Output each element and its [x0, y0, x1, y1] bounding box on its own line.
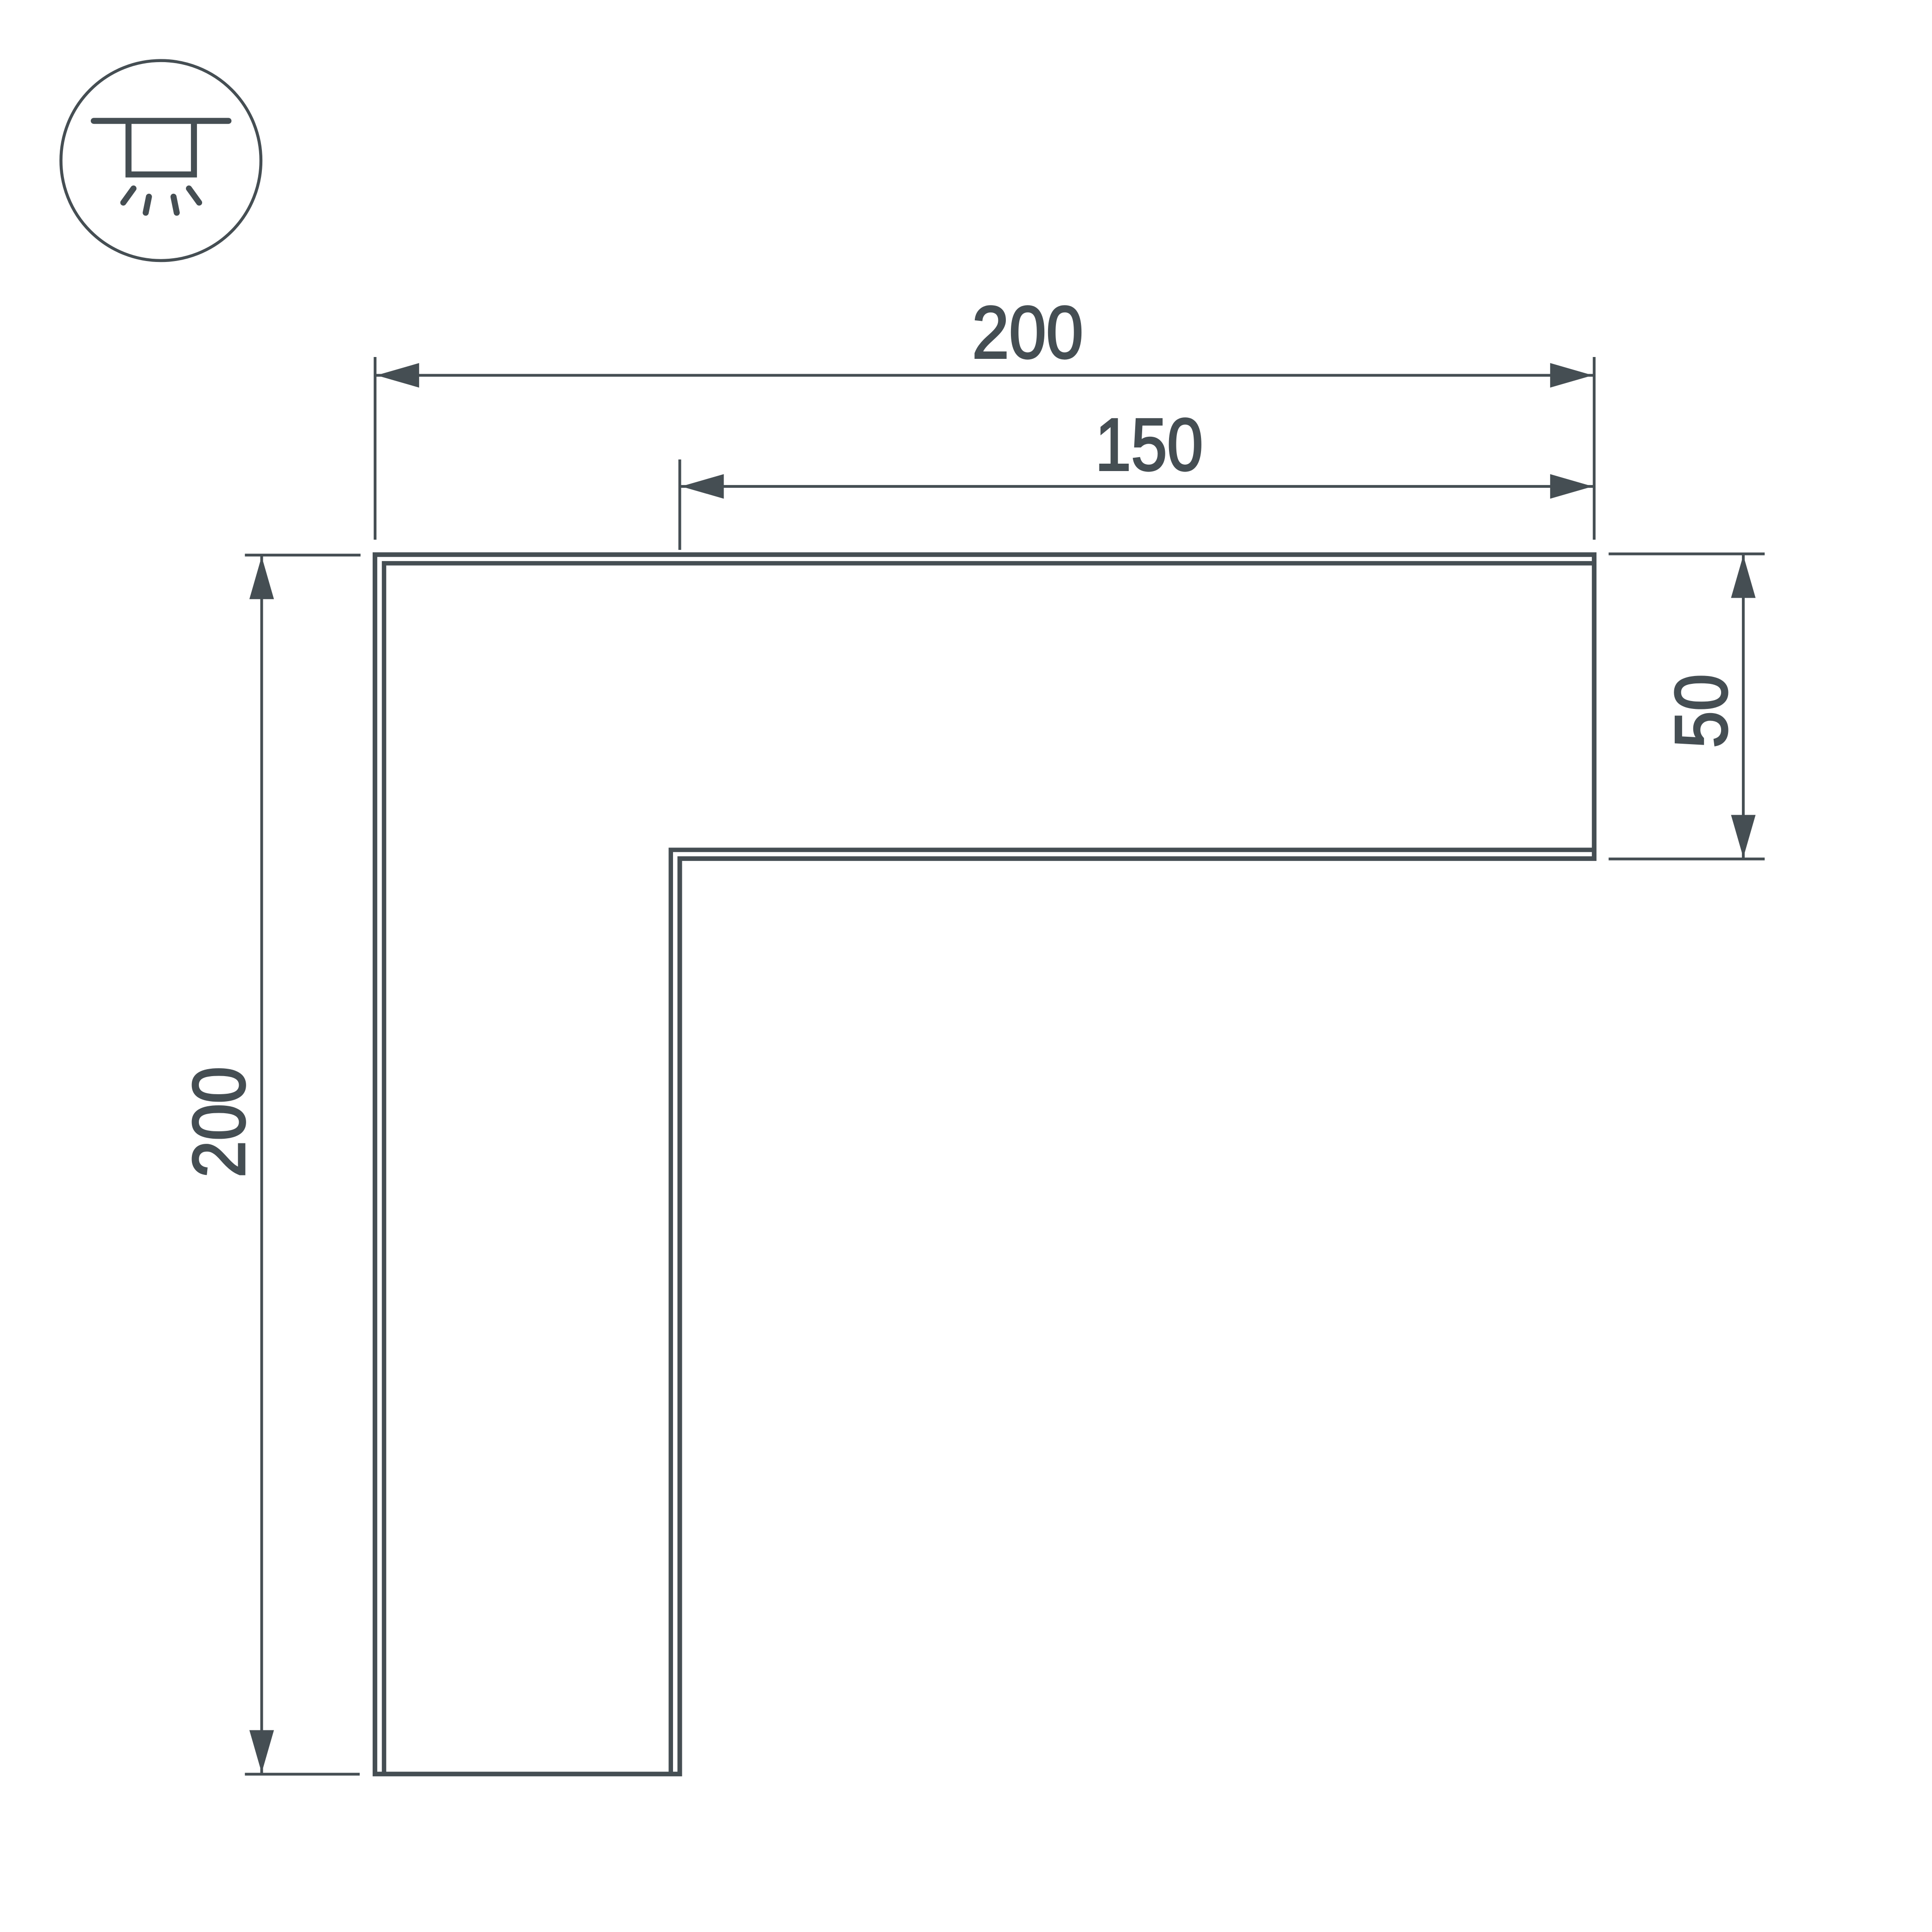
svg-text:150: 150 — [1095, 403, 1203, 486]
svg-text:200: 200 — [177, 1066, 260, 1178]
svg-text:50: 50 — [1659, 674, 1742, 748]
svg-text:200: 200 — [972, 291, 1083, 374]
